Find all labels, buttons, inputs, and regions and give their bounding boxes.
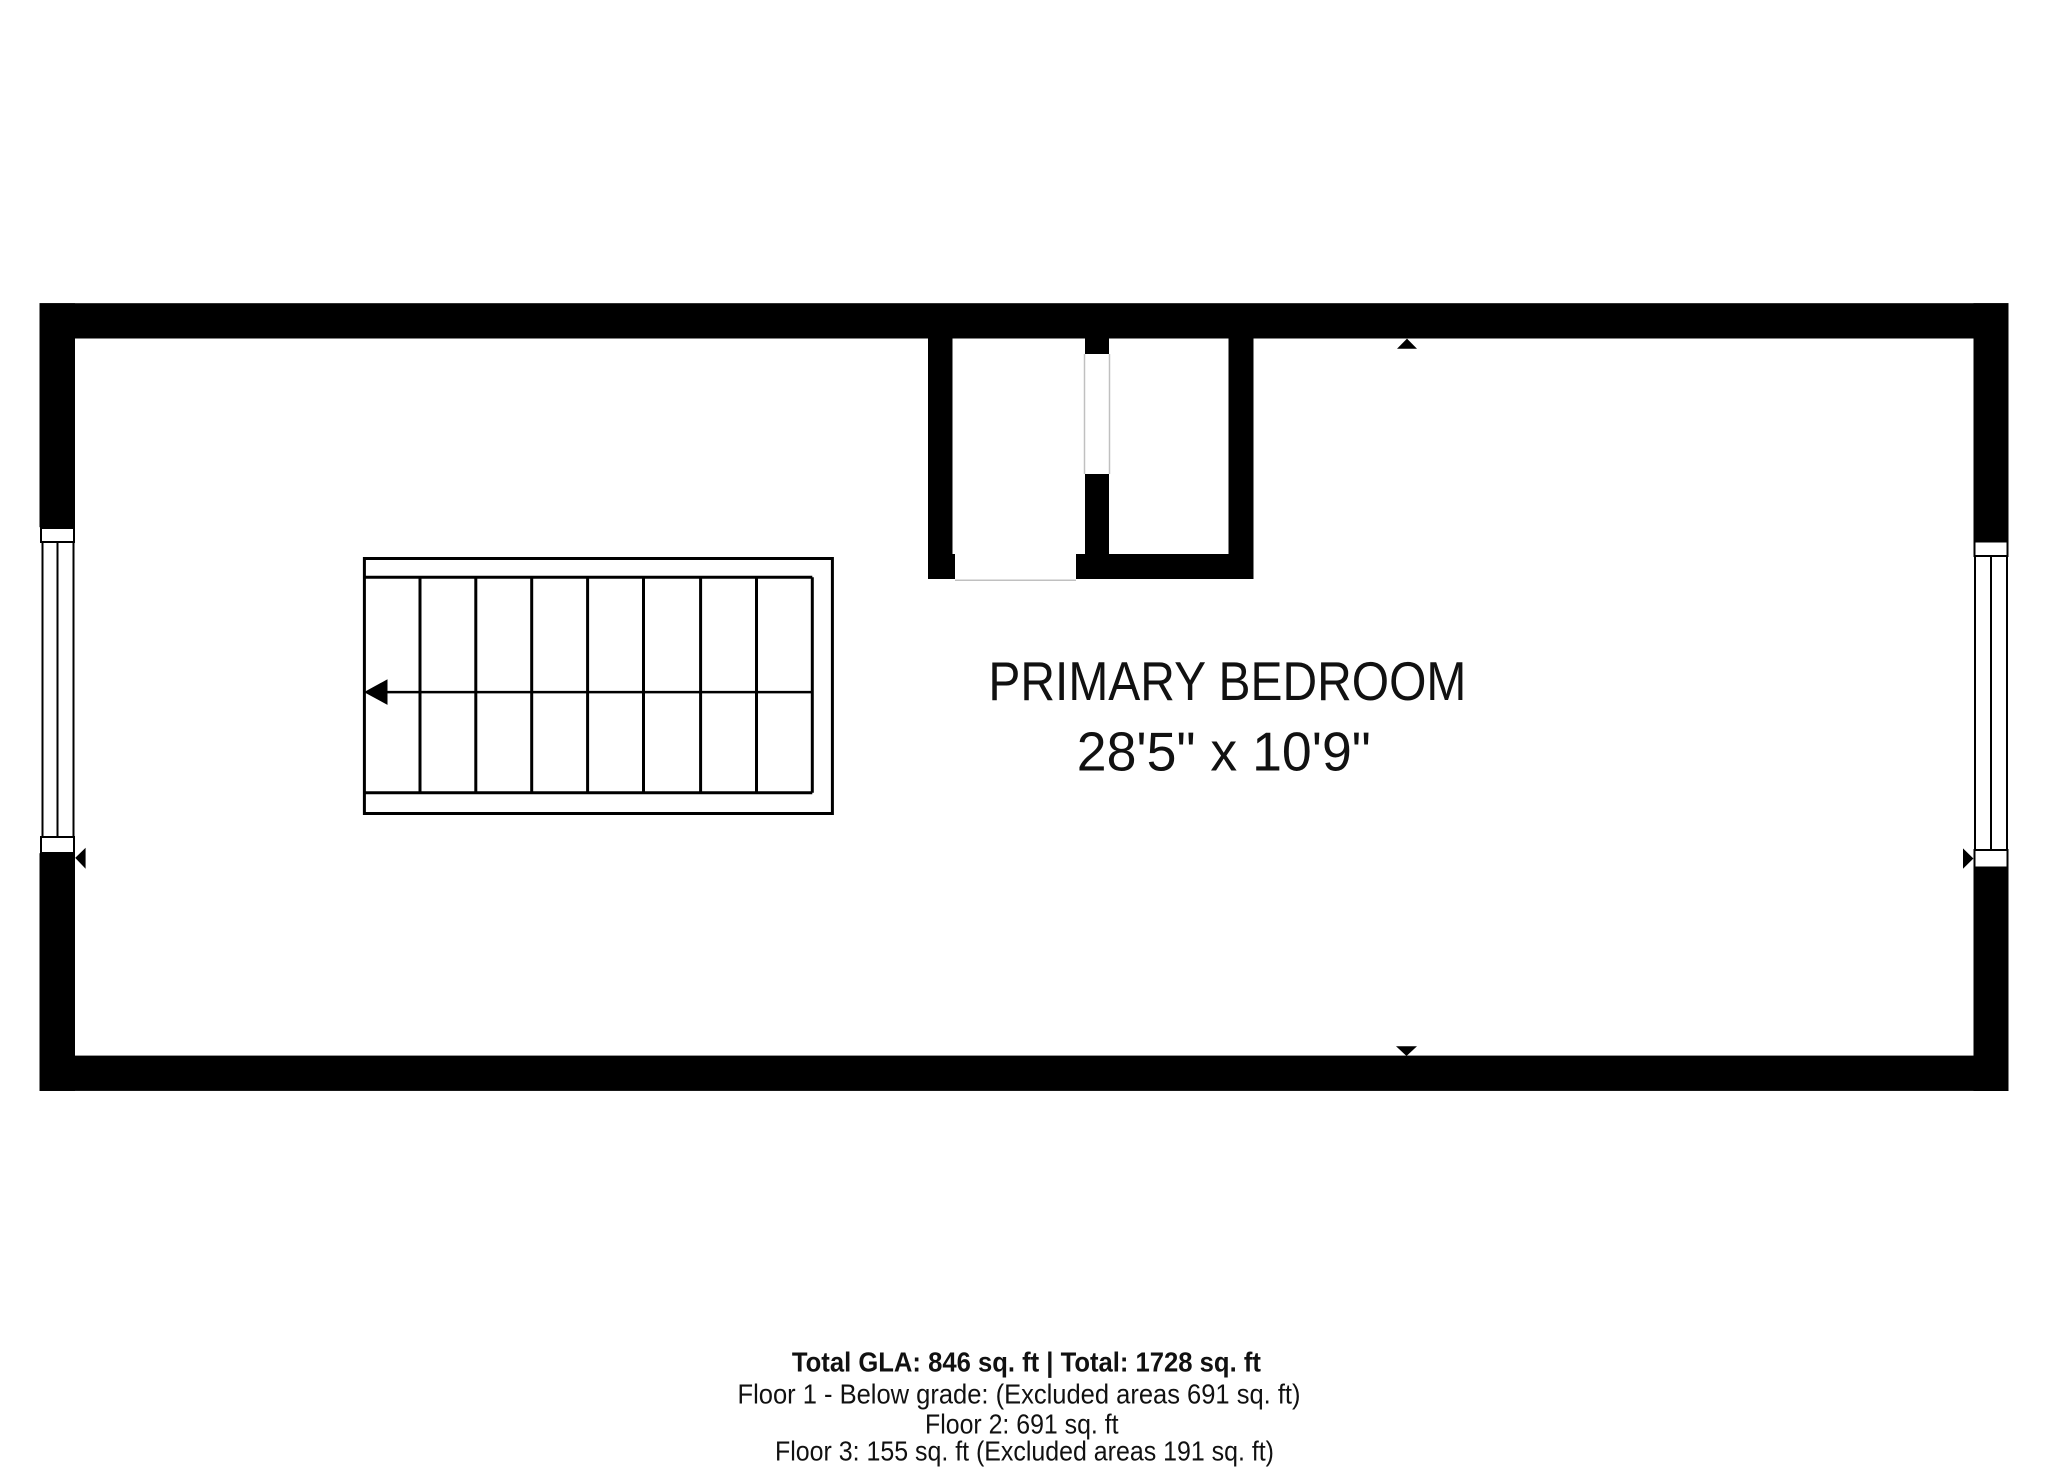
svg-text:PRIMARY BEDROOM: PRIMARY BEDROOM xyxy=(988,650,1466,712)
svg-text:28'5" x 10'9": 28'5" x 10'9" xyxy=(1077,720,1371,782)
svg-text:Floor 3: 155 sq. ft (Excluded: Floor 3: 155 sq. ft (Excluded areas 191 … xyxy=(775,1435,1274,1466)
svg-text:Total GLA: 846 sq. ft | Total:: Total GLA: 846 sq. ft | Total: 1728 sq. … xyxy=(792,1346,1261,1377)
svg-text:Floor 1 - Below grade: (Exclud: Floor 1 - Below grade: (Excluded areas 6… xyxy=(738,1378,1301,1409)
